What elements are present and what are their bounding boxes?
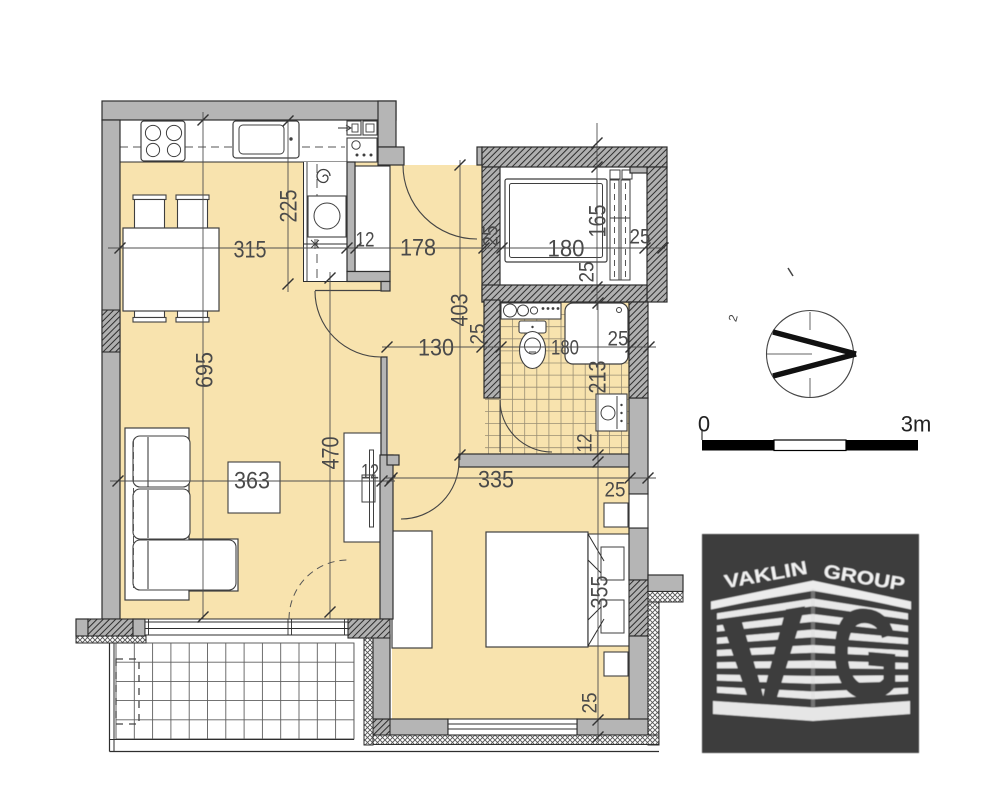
svg-text:3m: 3m (901, 412, 932, 437)
svg-text:335: 335 (478, 466, 514, 493)
svg-text:12: 12 (356, 228, 375, 251)
svg-text:180: 180 (548, 235, 585, 262)
svg-text:12: 12 (573, 434, 596, 453)
svg-text:225: 225 (275, 190, 302, 223)
svg-text:165: 165 (584, 205, 611, 238)
svg-text:178: 178 (400, 234, 436, 261)
svg-text:213: 213 (584, 361, 611, 394)
svg-text:25: 25 (608, 327, 629, 350)
svg-text:695: 695 (191, 352, 218, 388)
svg-text:130: 130 (418, 334, 454, 361)
svg-text:25: 25 (479, 226, 502, 247)
svg-text:25: 25 (630, 225, 651, 248)
svg-text:470: 470 (317, 437, 344, 470)
svg-text:355: 355 (586, 576, 613, 609)
svg-text:25: 25 (575, 262, 598, 283)
svg-text:25: 25 (578, 693, 601, 714)
svg-text:0: 0 (698, 412, 710, 437)
svg-text:180: 180 (551, 336, 579, 359)
svg-text:403: 403 (446, 294, 473, 327)
svg-text:315: 315 (234, 236, 267, 263)
svg-text:25: 25 (605, 478, 626, 501)
svg-text:12: 12 (361, 460, 379, 483)
svg-text:25: 25 (466, 324, 489, 345)
svg-text:363: 363 (234, 467, 270, 494)
